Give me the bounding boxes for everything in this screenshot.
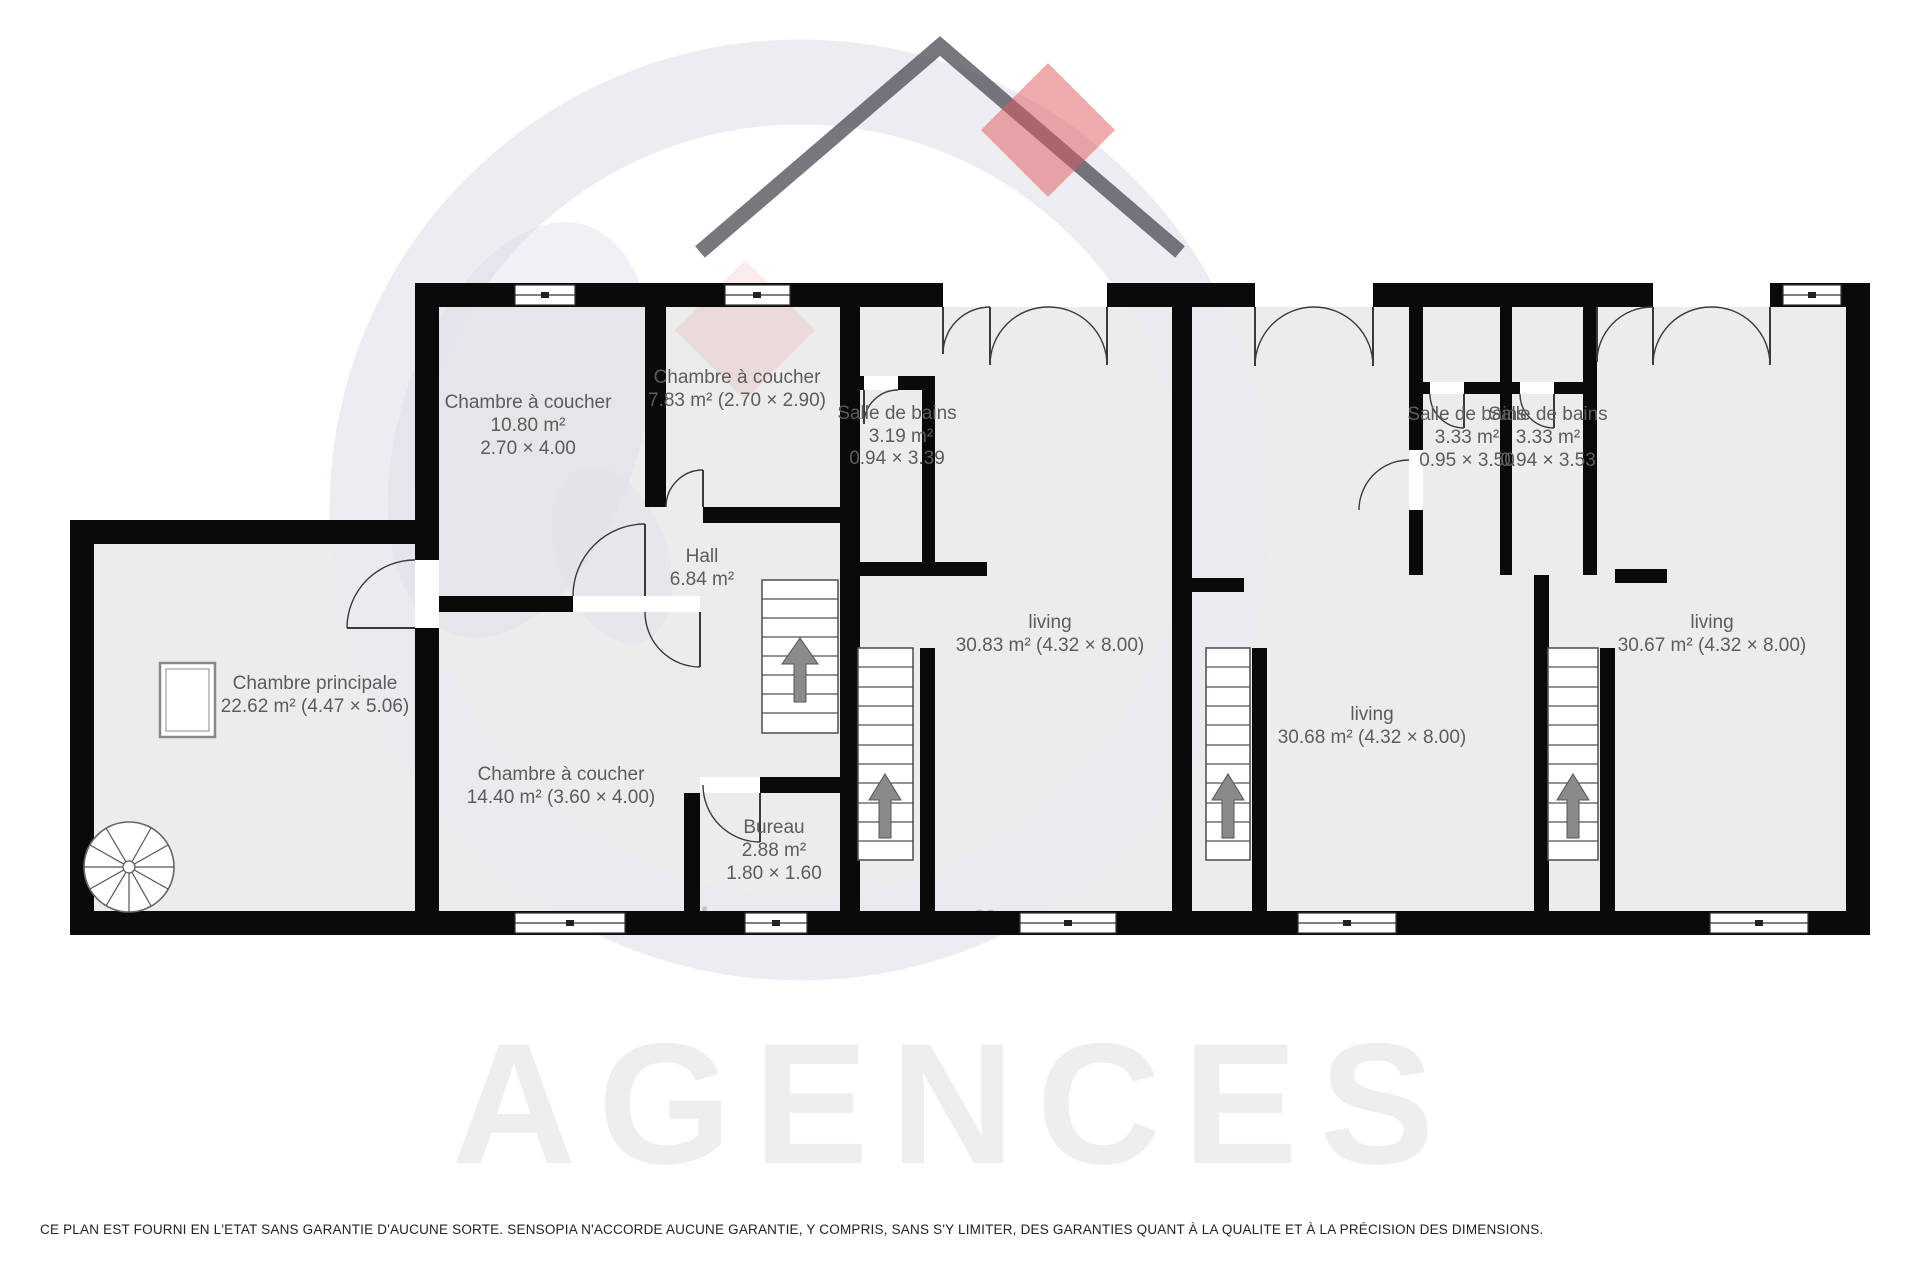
room-label-chambre-1: Chambre à coucher [445, 392, 613, 413]
wall-bottom [70, 911, 1870, 935]
wall-unit3-separator [1534, 575, 1549, 911]
wall-top [415, 283, 1870, 307]
floor-plan-drawing: M os [0, 0, 1920, 1280]
opening-annex [415, 560, 439, 628]
wall-stair2-right [920, 648, 935, 911]
wall-bath-divider [1500, 307, 1512, 575]
opening-bath1 [864, 376, 898, 390]
staircase [858, 648, 913, 860]
floor-plan-page: AGENCES M os [0, 0, 1920, 1280]
staircase [1206, 648, 1250, 860]
room-label-salle-de-bains-1: Salle de bains [837, 403, 956, 424]
room-dims-salle-de-bains-3: 0.94 × 3.53 [1500, 450, 1596, 471]
wall-bureau-left [684, 793, 700, 911]
opening-frenchdoor-unit3 [1255, 283, 1373, 307]
window-icon [1710, 913, 1808, 933]
window-icon [1020, 913, 1116, 933]
room-area-bureau: 2.88 m² [742, 840, 806, 861]
opening-entry-unit2 [943, 283, 990, 307]
opening-bedroom1 [573, 596, 645, 612]
opening-bath3 [1520, 382, 1554, 394]
wall-stub-2 [1192, 578, 1244, 592]
room-dims-chambre-2: 7.83 m² (2.70 × 2.90) [648, 390, 826, 411]
window-icon [745, 913, 807, 933]
room-label-living-3: living [1690, 612, 1733, 633]
room-dims-salle-de-bains-1: 0.94 × 3.39 [849, 448, 945, 469]
room-label-hall: Hall [686, 546, 719, 567]
room-area-chambre-1: 10.80 m² [491, 415, 566, 436]
skylight-icon [160, 663, 215, 737]
room-area-salle-de-bains-2: 3.33 m² [1435, 427, 1499, 448]
wall-bath-block-left [1409, 307, 1423, 575]
window-icon [515, 913, 625, 933]
staircase [762, 580, 838, 733]
room-label-bureau: Bureau [743, 817, 804, 838]
staircase [1548, 648, 1598, 860]
spiral-staircase-icon [84, 822, 174, 912]
room-label-chambre-2: Chambre à coucher [654, 367, 822, 388]
opening-bedroom3 [645, 596, 700, 612]
wall-stub-3 [1615, 569, 1667, 583]
room-dims-living-3: 30.67 m² (4.32 × 8.00) [1618, 635, 1807, 656]
room-label-chambre-3: Chambre à coucher [478, 764, 646, 785]
wall-stub-1 [935, 562, 987, 576]
room-label-chambre-principale: Chambre principale [233, 673, 398, 694]
opening-frenchdoor-unit4 [1653, 283, 1770, 307]
wall-annex-top [70, 520, 439, 544]
wall-bath1-bottom [860, 562, 935, 576]
room-label-living-1: living [1028, 612, 1071, 633]
wall-right [1846, 283, 1870, 935]
room-area-salle-de-bains-1: 3.19 m² [869, 426, 933, 447]
room-dims-chambre-3: 14.40 m² (3.60 × 4.00) [467, 787, 656, 808]
wall-unit1-separator [840, 307, 860, 911]
opening-bureau [700, 777, 760, 793]
opening-frenchdoor-unit2 [990, 283, 1107, 307]
wall-unit2-separator [1172, 307, 1192, 911]
room-area-salle-de-bains-3: 3.33 m² [1516, 427, 1580, 448]
window-icon [1298, 913, 1396, 933]
room-area-hall: 6.84 m² [670, 569, 734, 590]
room-label-salle-de-bains-3: Salle de bains [1488, 404, 1607, 425]
room-dims-living-2: 30.68 m² (4.32 × 8.00) [1278, 727, 1467, 748]
room-dims-living-1: 30.83 m² (4.32 × 8.00) [956, 635, 1145, 656]
wall-bedroom2-bottom [703, 507, 853, 523]
room-dims-bureau: 1.80 × 1.60 [726, 863, 822, 884]
opening-bath2 [1430, 382, 1464, 394]
wall-bath-block-right [1583, 307, 1597, 575]
wall-stair3-right [1252, 648, 1267, 911]
plan-disclaimer-text: CE PLAN EST FOURNI EN L'ETAT SANS GARANT… [40, 1222, 1543, 1237]
room-dims-chambre-principale: 22.62 m² (4.47 × 5.06) [221, 696, 410, 717]
window-icon [1783, 285, 1841, 305]
window-icon [515, 285, 575, 305]
room-dims-chambre-1: 2.70 × 4.00 [480, 438, 576, 459]
wall-stair4-right [1600, 648, 1615, 911]
window-icon [725, 285, 790, 305]
room-label-living-2: living [1350, 704, 1393, 725]
